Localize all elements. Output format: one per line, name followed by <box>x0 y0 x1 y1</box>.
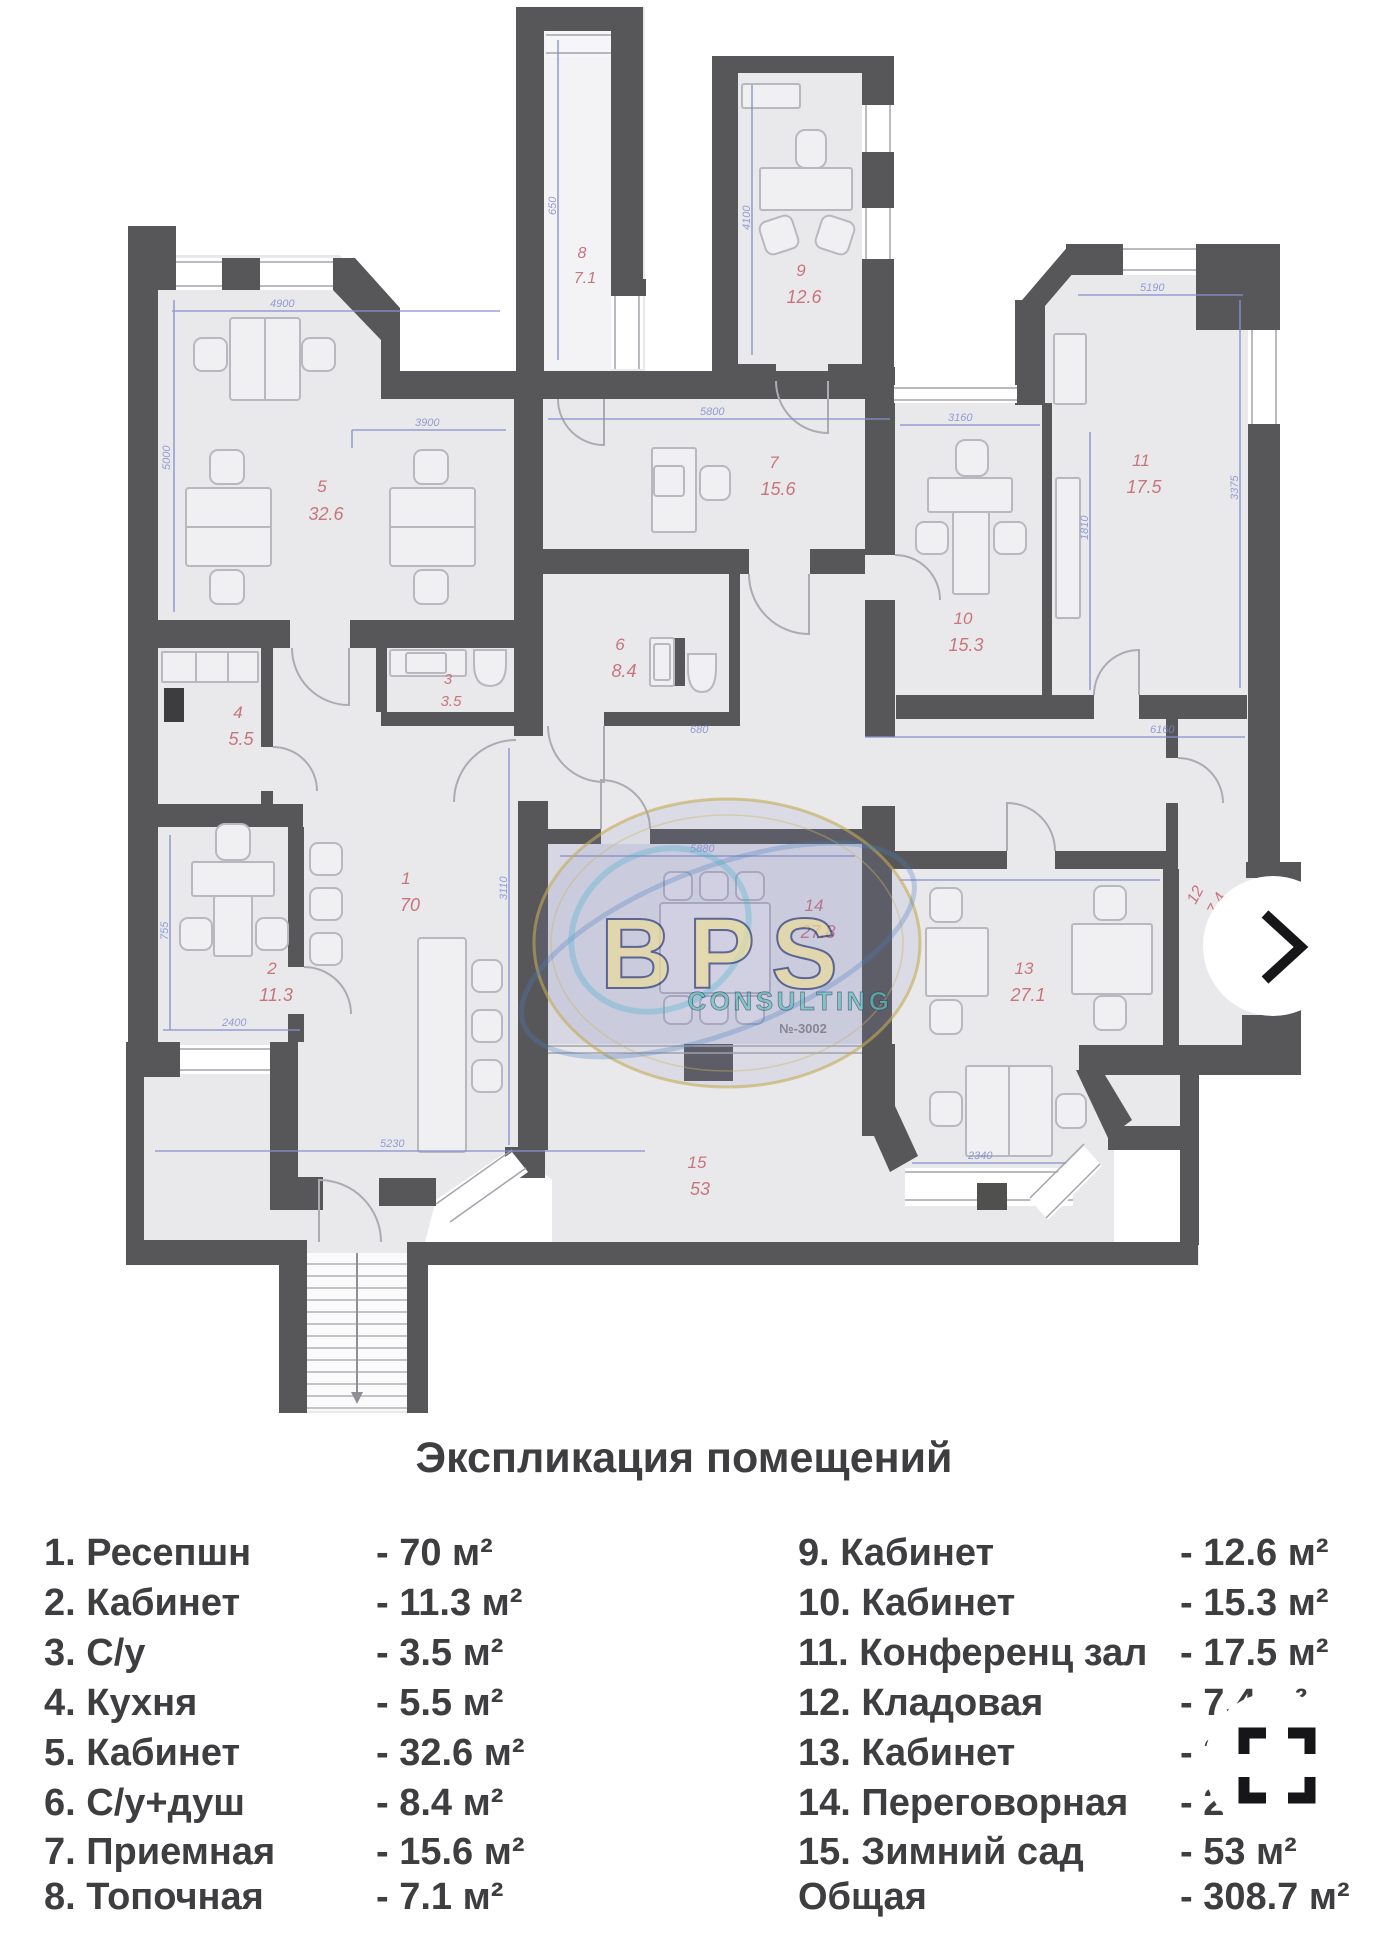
svg-text:4: 4 <box>233 703 242 722</box>
svg-text:- 15.6 м²: - 15.6 м² <box>376 1831 525 1873</box>
svg-text:6: 6 <box>615 635 625 654</box>
svg-text:3900: 3900 <box>415 417 440 429</box>
svg-text:3. С/у: 3. С/у <box>44 1632 145 1674</box>
svg-text:7: 7 <box>769 453 779 472</box>
svg-text:4. Кухня: 4. Кухня <box>44 1682 197 1724</box>
svg-text:5190: 5190 <box>1140 282 1165 294</box>
svg-text:8.4: 8.4 <box>611 661 636 681</box>
svg-text:15.3: 15.3 <box>948 635 983 655</box>
svg-text:11.3: 11.3 <box>259 985 293 1005</box>
svg-text:8. Топочная: 8. Топочная <box>44 1876 264 1918</box>
svg-text:1: 1 <box>401 869 410 888</box>
svg-text:755: 755 <box>159 921 171 940</box>
svg-text:13: 13 <box>1015 959 1034 978</box>
svg-text:Экспликация помещений: Экспликация помещений <box>416 1434 953 1482</box>
svg-text:1. Ресепшн: 1. Ресепшн <box>44 1532 251 1574</box>
svg-text:3160: 3160 <box>948 412 973 424</box>
svg-text:8: 8 <box>578 245 587 262</box>
svg-text:13. Кабинет: 13. Кабинет <box>798 1732 1015 1774</box>
svg-text:12.6: 12.6 <box>786 287 822 307</box>
svg-text:4900: 4900 <box>270 298 295 310</box>
svg-text:7. Приемная: 7. Приемная <box>44 1831 275 1873</box>
svg-text:4100: 4100 <box>741 205 753 230</box>
svg-text:6160: 6160 <box>1150 724 1175 736</box>
svg-text:9. Кабинет: 9. Кабинет <box>798 1532 994 1574</box>
svg-text:10. Кабинет: 10. Кабинет <box>798 1582 1015 1624</box>
svg-text:9: 9 <box>796 261 806 280</box>
svg-text:- 5.5 м²: - 5.5 м² <box>376 1682 503 1724</box>
svg-text:12. Кладовая: 12. Кладовая <box>798 1682 1043 1724</box>
svg-text:- 308.7 м²: - 308.7 м² <box>1180 1876 1350 1918</box>
svg-text:- 8.4 м²: - 8.4 м² <box>376 1782 503 1824</box>
svg-text:2. Кабинет: 2. Кабинет <box>44 1582 240 1624</box>
svg-text:2400: 2400 <box>221 1017 247 1029</box>
svg-text:5800: 5800 <box>700 406 725 418</box>
svg-text:- 53 м²: - 53 м² <box>1180 1831 1297 1873</box>
svg-text:53: 53 <box>690 1179 710 1199</box>
svg-text:3.5: 3.5 <box>441 693 463 710</box>
svg-text:- 17.5 м²: - 17.5 м² <box>1180 1632 1329 1674</box>
svg-text:7.1: 7.1 <box>574 270 596 287</box>
svg-text:№-3002: №-3002 <box>779 1021 827 1036</box>
svg-text:650: 650 <box>547 196 559 215</box>
svg-text:5: 5 <box>317 477 327 496</box>
svg-text:5000: 5000 <box>161 445 173 470</box>
svg-text:- 3.5 м²: - 3.5 м² <box>376 1632 503 1674</box>
svg-text:11: 11 <box>1132 451 1150 470</box>
svg-text:32.6: 32.6 <box>308 504 344 524</box>
svg-text:15. Зимний сад: 15. Зимний сад <box>798 1831 1084 1873</box>
svg-text:5230: 5230 <box>380 1138 405 1150</box>
svg-text:- 32.6 м²: - 32.6 м² <box>376 1732 525 1774</box>
svg-text:- 7.1 м²: - 7.1 м² <box>376 1876 503 1918</box>
svg-text:11. Конференц зал: 11. Конференц зал <box>798 1632 1147 1674</box>
svg-text:CONSULTING: CONSULTING <box>688 986 893 1016</box>
svg-text:680: 680 <box>690 724 709 736</box>
svg-text:6. С/у+душ: 6. С/у+душ <box>44 1782 245 1824</box>
svg-text:15: 15 <box>688 1153 707 1172</box>
svg-text:1810: 1810 <box>1079 515 1091 540</box>
svg-text:Общая: Общая <box>798 1876 927 1918</box>
svg-text:17.5: 17.5 <box>1126 477 1162 497</box>
svg-text:2: 2 <box>266 959 277 978</box>
svg-text:5. Кабинет: 5. Кабинет <box>44 1732 240 1774</box>
svg-text:- 11.3 м²: - 11.3 м² <box>376 1582 522 1624</box>
svg-text:14. Переговорная: 14. Переговорная <box>798 1782 1128 1824</box>
svg-text:3375: 3375 <box>1229 475 1241 500</box>
svg-text:- 15.3 м²: - 15.3 м² <box>1180 1582 1329 1624</box>
svg-text:3110: 3110 <box>498 875 510 900</box>
svg-text:- 12.6 м²: - 12.6 м² <box>1180 1532 1329 1574</box>
svg-text:- 70 м²: - 70 м² <box>376 1532 493 1574</box>
svg-text:70: 70 <box>400 895 420 915</box>
svg-text:5.5: 5.5 <box>228 729 254 749</box>
svg-text:3: 3 <box>444 671 453 688</box>
svg-text:15.6: 15.6 <box>760 479 796 499</box>
svg-text:27.1: 27.1 <box>1009 985 1045 1005</box>
svg-text:2340: 2340 <box>967 1150 993 1162</box>
svg-text:10: 10 <box>954 609 973 628</box>
